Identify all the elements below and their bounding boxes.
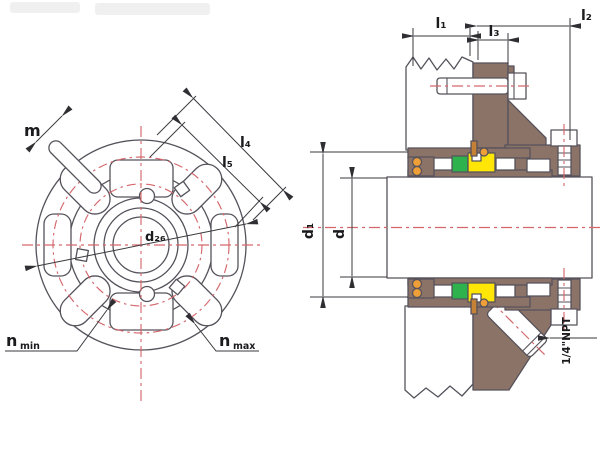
technical-drawing-page: m l₄ l₅ d₂₆ n min n max bbox=[0, 0, 600, 454]
label-d26: d₂₆ bbox=[145, 230, 166, 245]
o-ring bbox=[480, 148, 488, 156]
spring-pocket bbox=[527, 283, 550, 296]
label-l3: l₃ bbox=[489, 24, 500, 40]
gasket-pin bbox=[471, 141, 477, 156]
o-ring bbox=[413, 167, 422, 176]
label-n-min-sub: min bbox=[20, 341, 40, 352]
seal-drawing-canvas: m l₄ l₅ d₂₆ n min n max bbox=[0, 0, 600, 454]
label-d1: d₁ bbox=[301, 223, 317, 239]
o-ring bbox=[480, 299, 488, 307]
front-view: m l₄ l₅ d₂₆ n min n max bbox=[5, 96, 286, 404]
gasket-pin bbox=[471, 299, 477, 314]
label-l4: l₄ bbox=[240, 135, 251, 151]
o-ring bbox=[413, 289, 422, 298]
label-n-max-base: n bbox=[219, 331, 230, 350]
label-l2: l₂ bbox=[581, 8, 592, 24]
spring-pocket bbox=[527, 159, 550, 172]
label-d: d bbox=[332, 229, 348, 239]
housing-top bbox=[406, 57, 473, 150]
section-view: l₁ l₃ l₂ d₁ d 1/4"NPT bbox=[301, 8, 600, 398]
o-ring bbox=[413, 280, 422, 289]
label-n-max-sub: max bbox=[233, 341, 255, 352]
o-ring bbox=[413, 158, 422, 167]
label-l5: l₅ bbox=[222, 155, 233, 171]
label-l1: l₁ bbox=[436, 16, 447, 32]
label-port-npt: 1/4"NPT bbox=[561, 316, 573, 364]
tab-notch bbox=[140, 189, 155, 204]
seal-face-green-bottom bbox=[452, 283, 468, 299]
seal-face-green-top bbox=[452, 156, 468, 172]
spring-pocket bbox=[496, 158, 515, 170]
label-m: m bbox=[24, 121, 41, 140]
spring-pocket bbox=[496, 285, 515, 297]
housing-bottom bbox=[405, 306, 473, 398]
tab-notch bbox=[140, 287, 155, 302]
label-n-min-base: n bbox=[6, 331, 17, 350]
